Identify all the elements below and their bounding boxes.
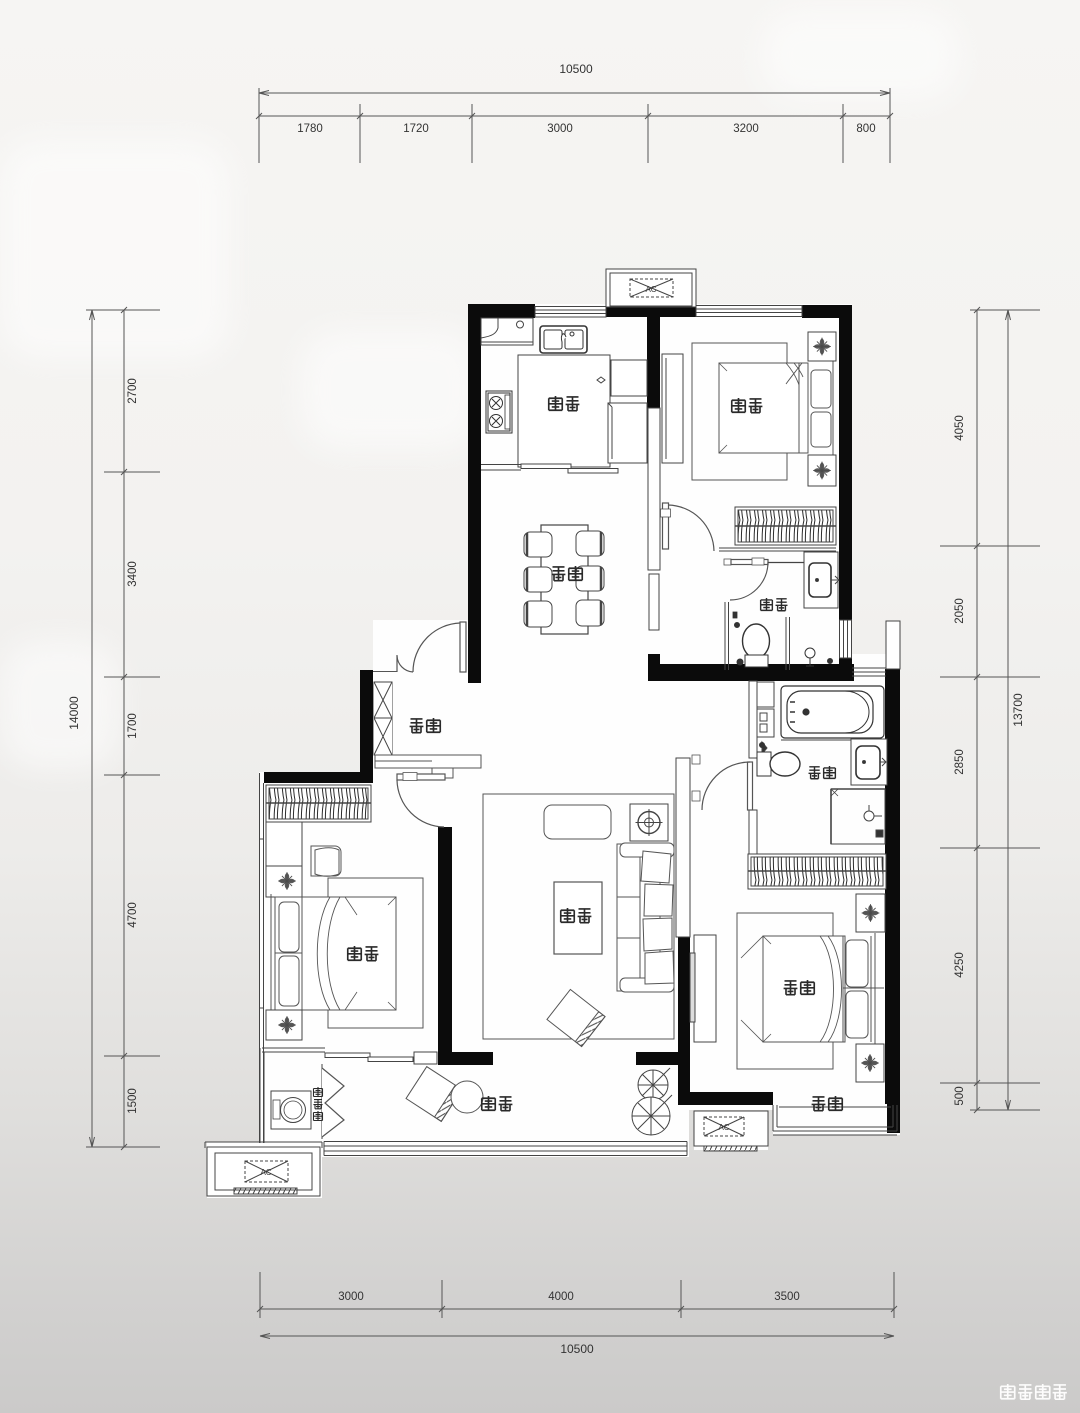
- svg-text:3400: 3400: [127, 561, 139, 587]
- svg-text:4000: 4000: [548, 1291, 574, 1303]
- svg-text:14000: 14000: [67, 696, 81, 730]
- svg-text:3200: 3200: [733, 123, 759, 135]
- svg-text:3500: 3500: [774, 1291, 800, 1303]
- svg-text:3000: 3000: [547, 123, 573, 135]
- svg-text:2700: 2700: [127, 378, 139, 404]
- svg-text:3000: 3000: [338, 1291, 364, 1303]
- svg-text:10500: 10500: [559, 62, 593, 76]
- svg-text:2050: 2050: [954, 598, 966, 624]
- svg-text:1720: 1720: [403, 123, 429, 135]
- svg-text:AC: AC: [645, 285, 656, 294]
- svg-text:13700: 13700: [1011, 693, 1025, 727]
- svg-text:4050: 4050: [954, 415, 966, 441]
- svg-text:1780: 1780: [297, 123, 323, 135]
- svg-text:4250: 4250: [954, 952, 966, 978]
- svg-text:4700: 4700: [127, 902, 139, 928]
- svg-text:800: 800: [856, 123, 875, 135]
- svg-text:500: 500: [954, 1086, 966, 1105]
- svg-text:10500: 10500: [560, 1342, 594, 1356]
- svg-text:AC: AC: [260, 1168, 271, 1177]
- svg-text:2850: 2850: [954, 749, 966, 775]
- svg-text:1500: 1500: [127, 1088, 139, 1114]
- svg-text:1700: 1700: [127, 713, 139, 739]
- svg-text:AC: AC: [718, 1123, 729, 1132]
